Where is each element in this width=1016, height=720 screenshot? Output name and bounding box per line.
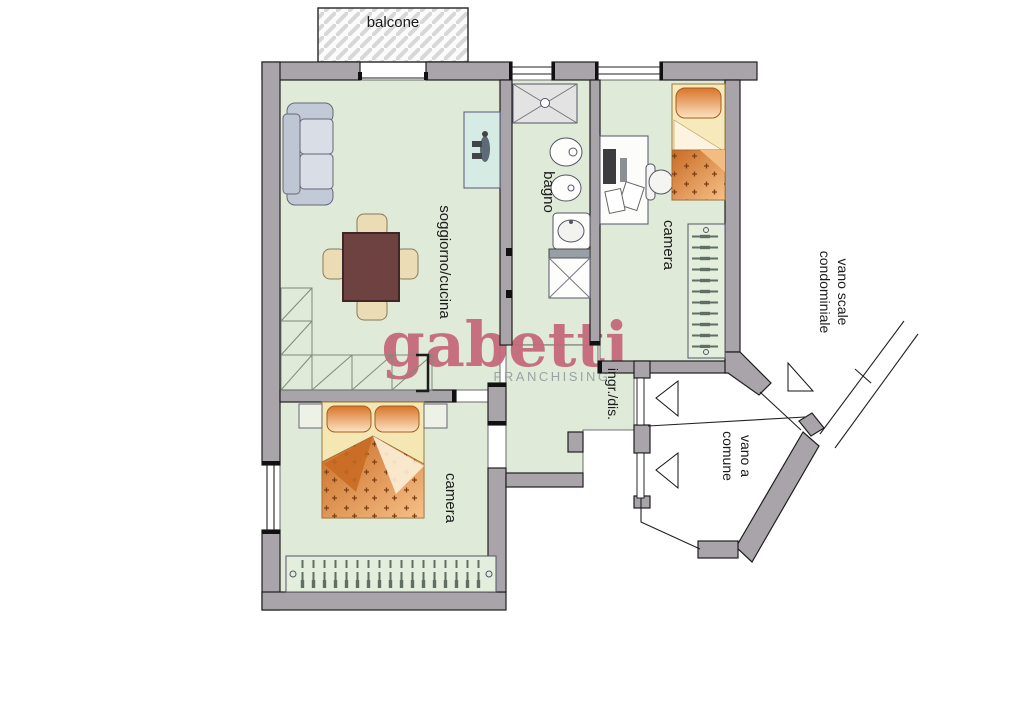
brand-subtitle: FRANCHISING — [493, 369, 610, 384]
wall-segment — [280, 390, 456, 402]
floor-plan: balcone gabetti FRANCHISING — [0, 0, 1016, 720]
bathroom-sink-icon — [553, 213, 590, 249]
door-swing-icon — [656, 381, 678, 416]
door-leaf — [637, 453, 644, 498]
wall-segment — [634, 361, 650, 378]
door-jamb — [488, 421, 506, 425]
door-jamb — [598, 361, 602, 373]
room-label-bathroom: bagno — [540, 171, 557, 213]
room-label-bedroom-bottom: camera — [442, 473, 459, 524]
shower-icon — [513, 84, 577, 123]
double-bed-icon — [322, 402, 424, 518]
room-label-entry-hall: ingr./dis. — [605, 368, 621, 420]
nightstand-icon — [299, 404, 322, 428]
wall-segment — [506, 473, 583, 487]
nightstand-icon — [424, 404, 447, 428]
door-leaf — [637, 378, 644, 425]
door-jamb — [506, 290, 512, 298]
wall-segment — [590, 80, 600, 345]
room-label-stairwell-line2: condominiale — [817, 251, 833, 334]
wall-segment — [488, 383, 506, 425]
room-label-stairwell-line1: vano scale — [835, 259, 851, 326]
wall-segment — [552, 62, 598, 80]
room-label-living-kitchen: soggiorno/cucina — [436, 205, 453, 319]
room-label-balcony: balcone — [367, 14, 420, 31]
sofa-icon — [283, 103, 333, 205]
wall-segment — [568, 432, 583, 452]
bathroom-shelf-icon — [549, 249, 590, 258]
pillow-icon — [375, 406, 419, 432]
wall-segment — [426, 62, 512, 80]
window — [595, 62, 663, 80]
door-jamb — [488, 383, 506, 387]
wardrobe-icon — [688, 224, 725, 358]
wall-segment — [660, 62, 757, 80]
wall-segment-diagonal — [725, 352, 771, 395]
room-label-bedroom-right: camera — [660, 220, 677, 271]
toilet-icon — [550, 138, 582, 166]
room-label-landing-line2: comune — [720, 431, 736, 481]
door-jamb — [452, 390, 456, 402]
door-swing-icon — [656, 453, 678, 488]
wardrobe-icon — [286, 556, 496, 592]
door-swing-icon — [788, 363, 813, 391]
door-jamb — [590, 341, 600, 345]
bathroom-cabinet-icon — [549, 258, 590, 298]
balcony-door-opening — [358, 72, 428, 80]
keyboard-icon — [620, 158, 627, 182]
kitchen-sink-icon — [464, 112, 500, 188]
room-label-landing-line1: vano a — [738, 435, 754, 477]
wall-segment — [262, 592, 506, 610]
door-jamb — [506, 248, 512, 256]
desk-icon — [600, 136, 648, 224]
window — [262, 461, 280, 534]
wall-segment — [725, 80, 740, 352]
wall-segment — [500, 80, 512, 345]
balcony: balcone — [318, 8, 468, 62]
monitor-icon — [603, 149, 616, 184]
single-bed-icon — [672, 84, 725, 200]
pillow-icon — [676, 88, 721, 118]
window — [509, 62, 555, 80]
wall-segment — [634, 425, 650, 453]
wall-segment — [262, 62, 280, 465]
wall-segment — [698, 541, 738, 558]
pillow-icon — [327, 406, 371, 432]
